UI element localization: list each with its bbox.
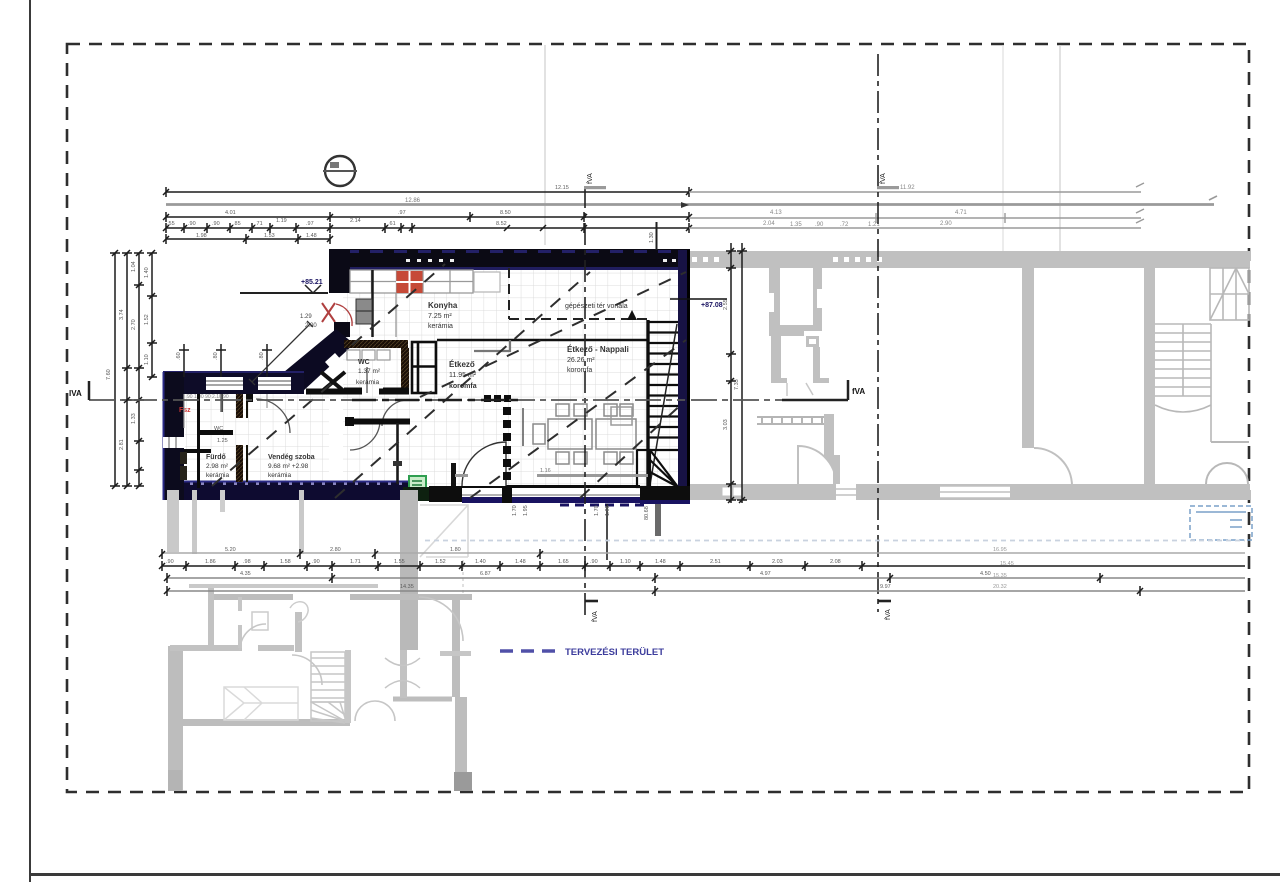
svg-text:.97: .97 — [306, 221, 314, 227]
svg-text:9.68 m² +2.98: 9.68 m² +2.98 — [268, 463, 309, 470]
svg-text:1.65: 1.65 — [558, 559, 569, 565]
svg-text:2.55: 2.55 — [723, 299, 729, 310]
svg-text:1.30: 1.30 — [649, 232, 655, 243]
svg-text:4.01: 4.01 — [225, 210, 236, 216]
svg-text:1.55: 1.55 — [394, 559, 405, 565]
svg-text:2.98 m²: 2.98 m² — [206, 463, 229, 470]
svg-text:.80: .80 — [213, 352, 219, 360]
svg-text:1.95: 1.95 — [605, 505, 611, 516]
svg-text:1.48: 1.48 — [306, 233, 317, 239]
svg-text:1.48: 1.48 — [515, 559, 526, 565]
svg-text:3.74: 3.74 — [119, 309, 125, 320]
svg-text:1.10: 1.10 — [620, 559, 631, 565]
svg-text:1.71: 1.71 — [350, 559, 361, 565]
svg-text:.71: .71 — [255, 221, 263, 227]
svg-text:fVA: fVA — [852, 387, 865, 396]
svg-text:.90: .90 — [188, 221, 196, 227]
svg-text:Vendég szoba: Vendég szoba — [268, 454, 315, 461]
svg-text:.61: .61 — [388, 221, 396, 227]
svg-text:1.52: 1.52 — [144, 314, 150, 325]
svg-text:7.33: 7.33 — [734, 379, 740, 390]
svg-text:7.25 m²: 7.25 m² — [428, 313, 452, 320]
svg-text:Fürdő: Fürdő — [206, 454, 226, 461]
svg-text:2.14: 2.14 — [350, 218, 361, 224]
svg-text:.97: .97 — [398, 210, 406, 216]
svg-text:+85.21: +85.21 — [301, 279, 323, 286]
svg-text:.90: .90 — [166, 559, 174, 565]
svg-text:2.03: 2.03 — [772, 559, 783, 565]
svg-text:1.37 m²: 1.37 m² — [358, 368, 381, 375]
svg-text:IVA: IVA — [69, 389, 82, 398]
svg-text:fVA: fVA — [880, 173, 887, 184]
svg-text:.60: .60 — [176, 352, 182, 360]
svg-text:1.95: 1.95 — [523, 505, 529, 516]
svg-text:4.50: 4.50 — [980, 571, 991, 577]
svg-text:5.20: 5.20 — [225, 547, 236, 553]
svg-text:fVA: fVA — [885, 609, 892, 620]
svg-text:.85: .85 — [233, 221, 241, 227]
svg-text:1.80: 1.80 — [450, 547, 461, 553]
svg-text:16.95: 16.95 — [993, 547, 1007, 553]
svg-text:2.80: 2.80 — [330, 547, 341, 553]
svg-text:1.19: 1.19 — [276, 218, 287, 224]
svg-text:1.10: 1.10 — [144, 354, 150, 365]
svg-text:8.52: 8.52 — [496, 221, 507, 227]
svg-text:15.45: 15.45 — [1000, 561, 1014, 567]
svg-text:4.35: 4.35 — [240, 571, 251, 577]
svg-text:9.97: 9.97 — [880, 584, 891, 590]
svg-text:1.86: 1.86 — [205, 559, 216, 565]
svg-text:fVA: fVA — [592, 611, 599, 622]
svg-text:kerámia: kerámia — [206, 472, 230, 479]
svg-text:.72: .72 — [840, 222, 849, 228]
svg-text:6.87: 6.87 — [480, 571, 491, 577]
svg-text:15.35: 15.35 — [993, 573, 1007, 579]
svg-text:3.03: 3.03 — [723, 419, 729, 430]
svg-text:Étkező: Étkező — [449, 360, 475, 369]
svg-text:26.26 m²: 26.26 m² — [567, 357, 595, 364]
svg-text:1.40: 1.40 — [475, 559, 486, 565]
svg-text:.90: .90 — [312, 559, 320, 565]
svg-text:Étkező - Nappali: Étkező - Nappali — [567, 345, 629, 354]
svg-text:11.92: 11.92 — [900, 185, 915, 191]
svg-text:.90: .90 — [212, 221, 220, 227]
svg-text:+87.08: +87.08 — [701, 302, 723, 309]
svg-text:14.35: 14.35 — [400, 584, 414, 590]
svg-text:kerámia: kerámia — [428, 323, 453, 330]
svg-text:2.51: 2.51 — [710, 559, 721, 565]
svg-text:WC: WC — [358, 359, 370, 366]
svg-text:1.48: 1.48 — [655, 559, 666, 565]
svg-text:2.70: 2.70 — [131, 319, 137, 330]
svg-text:koromfa: koromfa — [567, 367, 592, 374]
svg-text:1.52: 1.52 — [435, 559, 446, 565]
svg-text:8.50: 8.50 — [500, 210, 511, 216]
svg-text:12.86: 12.86 — [405, 198, 421, 204]
svg-text:Fsz: Fsz — [179, 407, 191, 414]
svg-text:.90: .90 — [815, 222, 824, 228]
svg-text:1.33: 1.33 — [131, 413, 137, 424]
svg-text:80.68: 80.68 — [644, 506, 650, 520]
svg-text:1.70: 1.70 — [512, 505, 518, 516]
svg-text:2.90: 2.90 — [940, 221, 952, 227]
svg-text:2.81: 2.81 — [119, 439, 125, 450]
svg-text:4.71: 4.71 — [955, 210, 967, 216]
svg-text:1.40: 1.40 — [144, 267, 150, 278]
svg-text:.55: .55 — [167, 221, 175, 227]
svg-text:20.32: 20.32 — [993, 584, 1007, 590]
svg-text:.90: .90 — [590, 559, 598, 565]
svg-text:kerámia: kerámia — [268, 472, 292, 479]
svg-text:2.00: 2.00 — [305, 323, 317, 329]
svg-text:1.58: 1.58 — [280, 559, 291, 565]
svg-text:1.98: 1.98 — [196, 233, 207, 239]
svg-text:.80: .80 — [259, 352, 265, 360]
svg-text:.98: .98 — [243, 559, 251, 565]
svg-text:7.60: 7.60 — [106, 369, 112, 380]
svg-text:4.97: 4.97 — [760, 571, 771, 577]
svg-text:2.08: 2.08 — [830, 559, 841, 565]
svg-text:fVA: fVA — [587, 173, 594, 184]
svg-text:1.25: 1.25 — [217, 438, 228, 444]
svg-text:12.15: 12.15 — [555, 185, 569, 191]
svg-text:2.04: 2.04 — [763, 221, 775, 227]
svg-text:1.16: 1.16 — [540, 468, 551, 474]
svg-text:TERVEZÉSI TERÜLET: TERVEZÉSI TERÜLET — [565, 647, 664, 658]
svg-text:1.53: 1.53 — [264, 233, 275, 239]
svg-text:Konyha: Konyha — [428, 301, 458, 310]
svg-text:kerámia: kerámia — [356, 379, 380, 386]
svg-text:1.04: 1.04 — [131, 261, 137, 272]
svg-text:1.70: 1.70 — [594, 505, 600, 516]
svg-text:1.29: 1.29 — [300, 314, 312, 320]
svg-text:1.35: 1.35 — [790, 222, 802, 228]
svg-text:WC: WC — [214, 426, 223, 432]
svg-text:4.13: 4.13 — [770, 210, 782, 216]
